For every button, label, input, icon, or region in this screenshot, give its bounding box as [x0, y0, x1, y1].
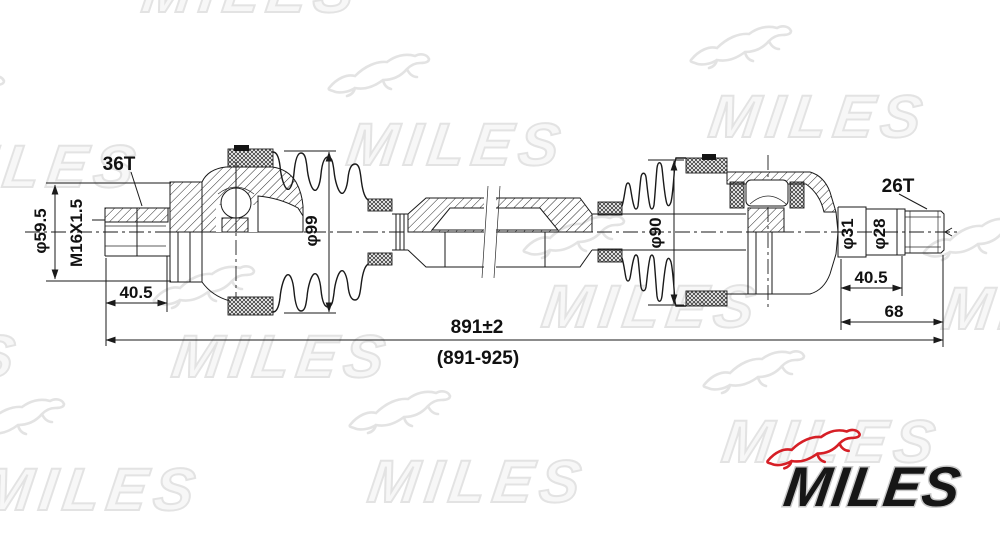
dim-right-step-length: 40.5	[854, 268, 887, 287]
dim-overall-length-range: (891-925)	[437, 348, 519, 369]
drawing-page: MILES	[0, 0, 1000, 540]
dim-outer-joint-diameter: φ99	[302, 215, 321, 246]
dim-overall-length: 891±2	[451, 317, 504, 338]
tripod-hub	[748, 208, 784, 232]
brand-logo-text: MILES	[780, 455, 965, 518]
dim-left-spline-length: 40.5	[119, 283, 152, 302]
dim-left-spline-teeth: 36T	[103, 154, 136, 175]
dim-right-step-diameter-2: φ28	[870, 218, 889, 249]
watermark-layer	[0, 0, 1000, 523]
dim-thread-spec: M16X1.5	[67, 199, 86, 267]
dim-right-spline-teeth: 26T	[882, 176, 915, 197]
dim-right-stub-length: 68	[885, 302, 904, 321]
outer-cv-joint	[202, 166, 303, 301]
break-gap	[484, 190, 496, 276]
dim-right-step-diameter-1: φ31	[838, 218, 857, 249]
clamp-buckle	[702, 154, 716, 160]
left-flange	[170, 182, 202, 282]
axle-drawing: φ59.5 M16X1.5 36T 40.5 φ99 φ90 26T φ31	[25, 145, 958, 369]
dim-inner-joint-diameter: φ90	[646, 217, 665, 248]
dim-left-flange-diameter: φ59.5	[31, 208, 50, 253]
clamp-buckle	[234, 145, 249, 151]
